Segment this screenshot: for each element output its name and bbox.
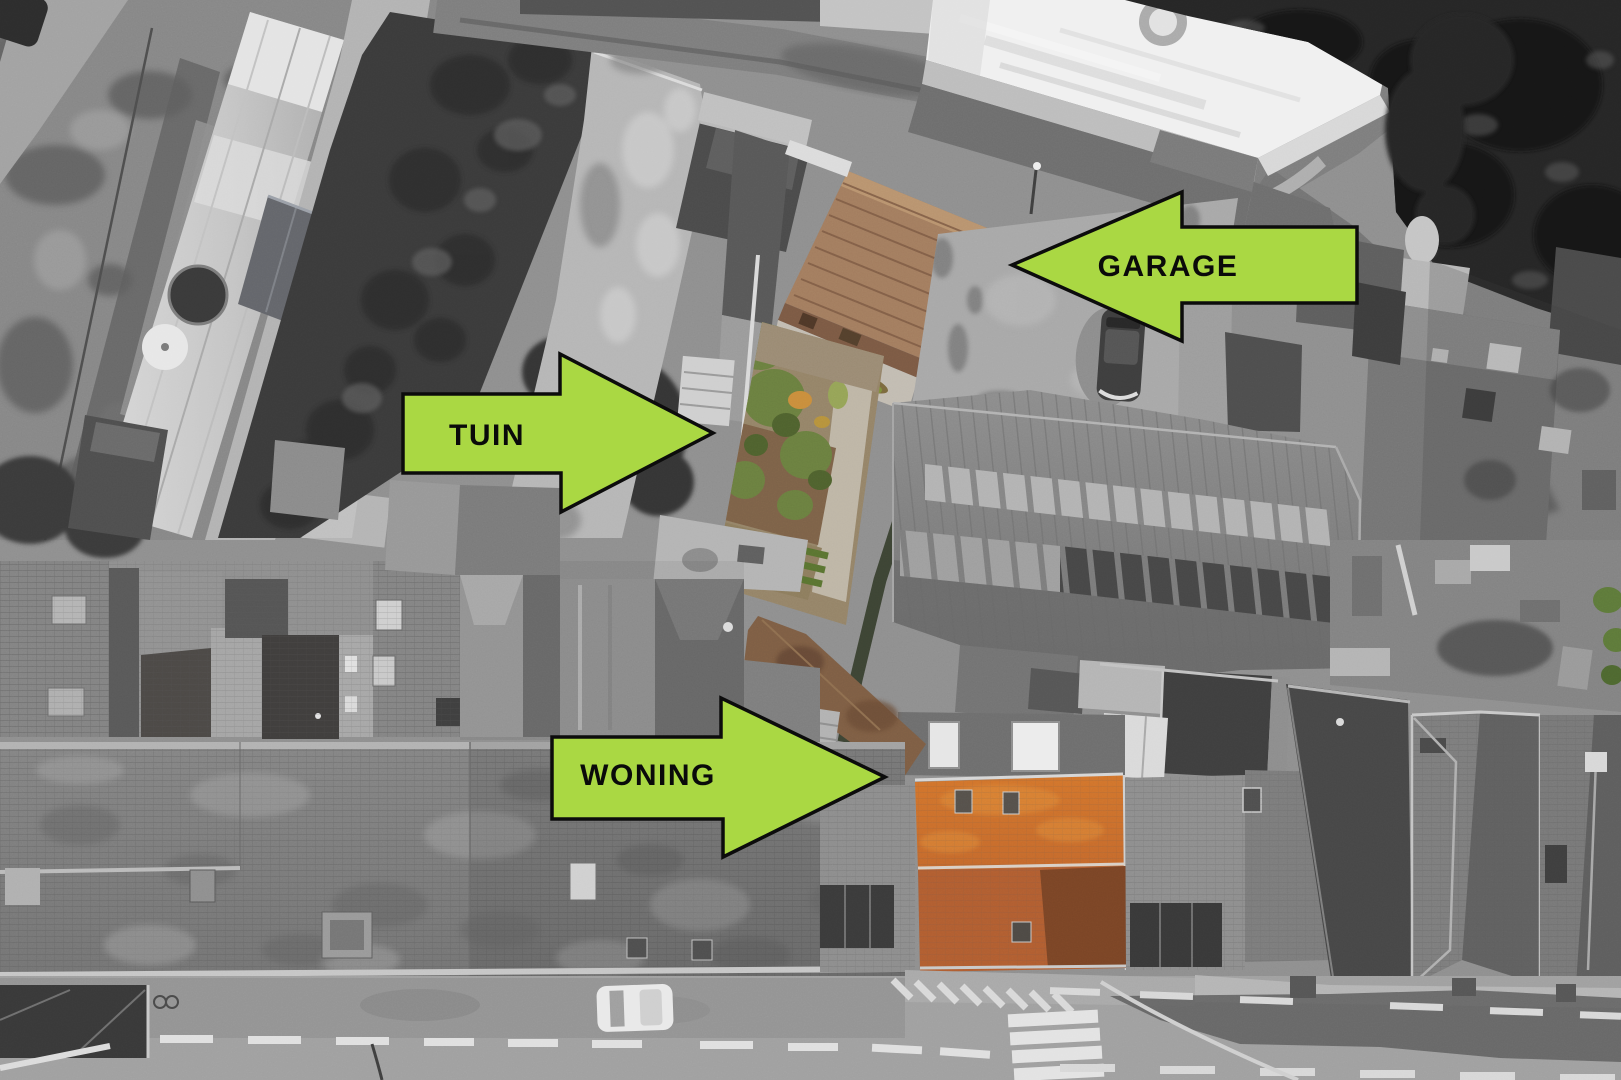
svg-text:TUIN: TUIN bbox=[449, 419, 525, 452]
svg-text:GARAGE: GARAGE bbox=[1098, 250, 1239, 283]
svg-text:WONING: WONING bbox=[580, 759, 716, 792]
